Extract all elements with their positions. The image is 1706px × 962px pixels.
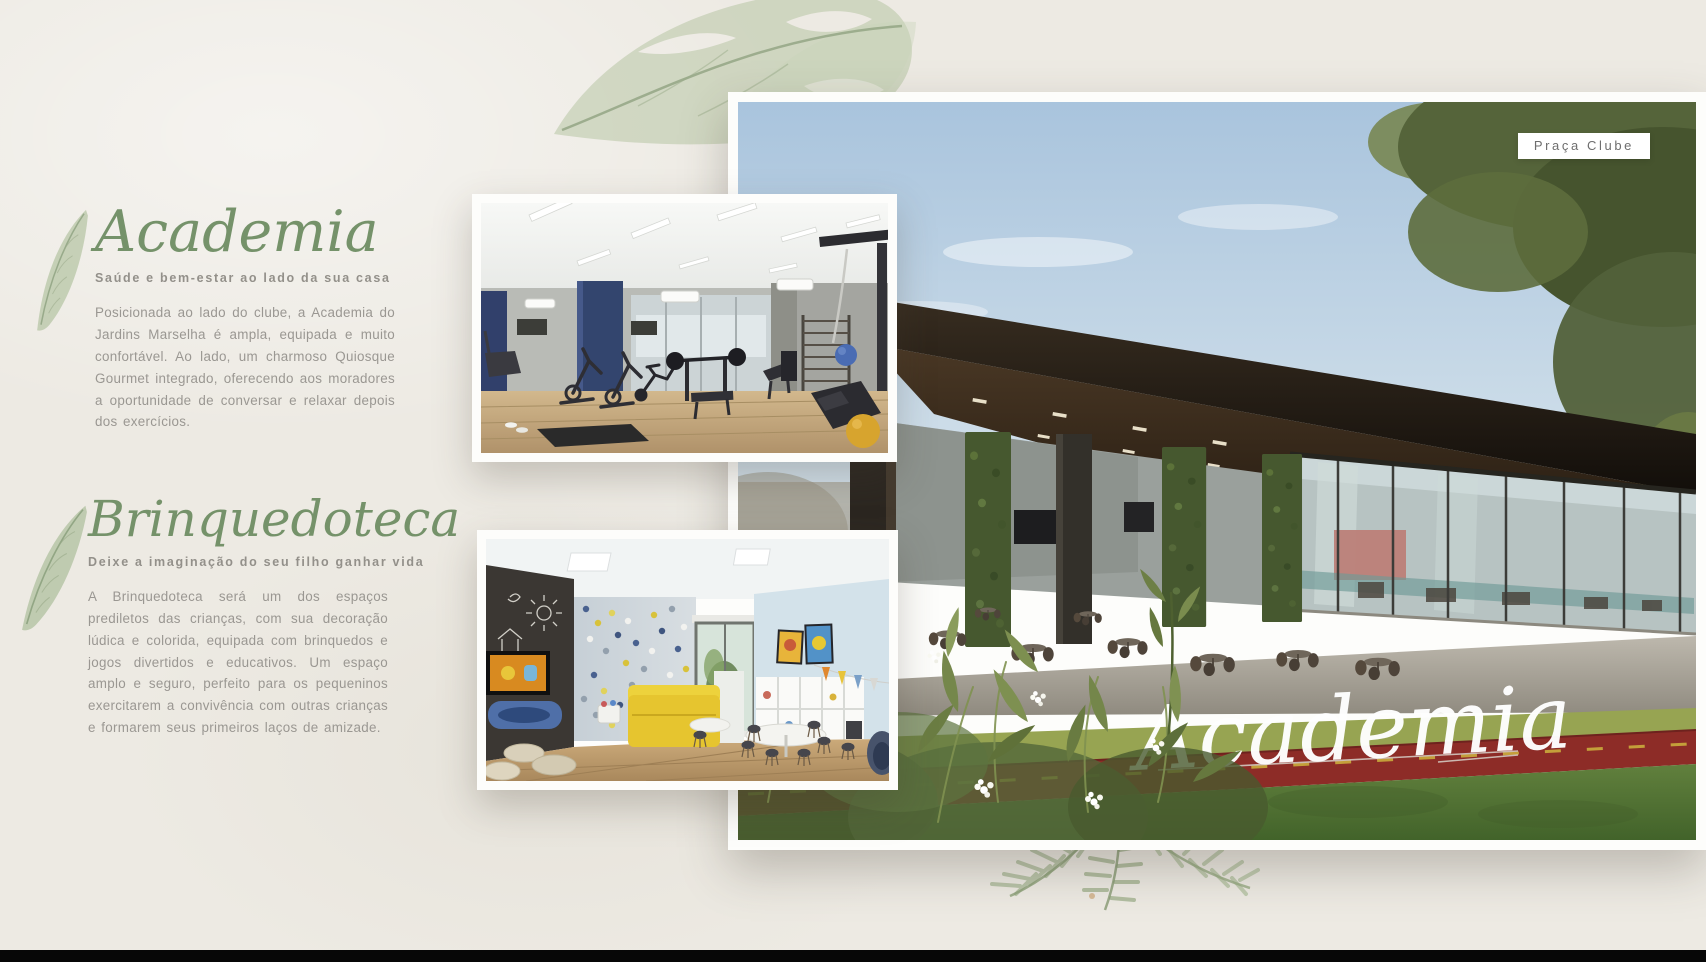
brochure-page: Academia Saúde e bem-estar ao lado da su… — [0, 0, 1706, 962]
feather-leaf-icon — [14, 498, 96, 644]
gym-photo — [472, 194, 897, 462]
gym-interior-illustration — [481, 203, 888, 453]
playroom-interior-illustration — [486, 539, 889, 781]
playroom-photo — [477, 530, 898, 790]
feather-leaf-icon — [24, 206, 102, 340]
brinquedoteca-paragraph: A Brinquedoteca será um dos espaços pred… — [88, 586, 388, 739]
academia-paragraph: Posicionada ao lado do clube, a Academia… — [95, 302, 395, 433]
academia-title: Academia — [95, 203, 395, 261]
brinquedoteca-title: Brinquedoteca — [88, 494, 388, 545]
section-brinquedoteca: Brinquedoteca Deixe a imaginação do seu … — [88, 494, 388, 739]
section-academia: Academia Saúde e bem-estar ao lado da su… — [95, 203, 395, 433]
bottom-black-bar — [0, 950, 1706, 962]
location-badge: Praça Clube — [1518, 133, 1650, 159]
brinquedoteca-subtitle: Deixe a imaginação do seu filho ganhar v… — [88, 555, 388, 569]
academia-subtitle: Saúde e bem-estar ao lado da sua casa — [95, 271, 395, 285]
